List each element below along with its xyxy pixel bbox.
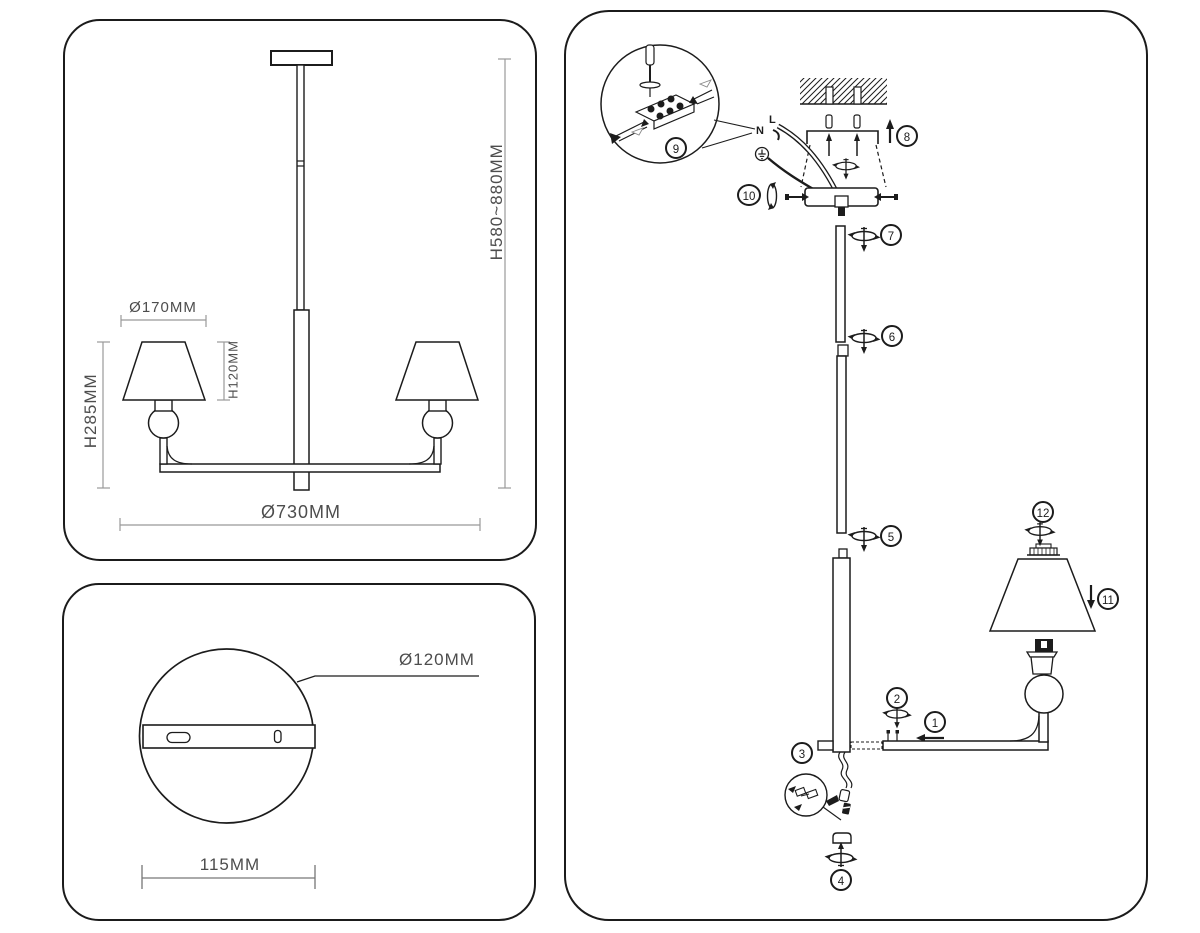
wire-live-label: L xyxy=(769,114,776,126)
ceiling-hatch xyxy=(800,78,887,104)
lamp-arm xyxy=(883,741,1048,750)
screwdriver-icon xyxy=(646,45,654,65)
rod-connector xyxy=(838,345,848,356)
dim-canopy-diameter: Ø120MM xyxy=(367,650,507,670)
edge-screw-icon xyxy=(768,182,777,210)
assembly-step-8: 8 xyxy=(896,125,918,147)
assembly-step-1: 1 xyxy=(924,711,946,733)
arm-stub-left xyxy=(818,741,833,750)
assembly-step-6: 6 xyxy=(881,325,903,347)
bottom-cap xyxy=(833,833,851,843)
lamp-socket xyxy=(1031,657,1053,674)
center-hub-assembly xyxy=(833,558,850,752)
dim-arm-height: H285MM xyxy=(81,351,101,471)
dim-shade-height: H120MM xyxy=(227,309,242,429)
wire-neutral-label: N xyxy=(756,125,764,137)
ground-symbol-icon xyxy=(756,148,769,161)
dim-hole-spacing: 115MM xyxy=(160,855,300,875)
dim-shade-diameter: Ø170MM xyxy=(93,299,233,316)
suspension-rod xyxy=(297,65,304,310)
cross-arm xyxy=(160,464,440,472)
assembly-step-10: 10 xyxy=(737,184,761,206)
line-art xyxy=(0,0,1200,933)
right-sphere xyxy=(423,408,453,438)
center-hub xyxy=(294,310,309,490)
assembly-step-9: 9 xyxy=(665,137,687,159)
assembly-step-11: 11 xyxy=(1097,588,1119,610)
right-socket xyxy=(429,400,446,411)
rod-section-lower xyxy=(837,356,846,533)
ceiling-canopy xyxy=(271,51,332,65)
detail-bubble-terminal xyxy=(601,45,719,163)
assembly-step-3: 3 xyxy=(791,742,813,764)
dim-overall-height: H580~880MM xyxy=(487,122,507,282)
glass-sphere xyxy=(1025,675,1063,713)
assembly-step-7: 7 xyxy=(880,224,902,246)
left-sphere xyxy=(149,408,179,438)
rod-section-upper xyxy=(836,226,845,342)
instruction-sheet: { "front": { "shade_diameter": "Ø170MM",… xyxy=(0,0,1200,933)
left-socket xyxy=(155,400,172,411)
assembly-step-2: 2 xyxy=(886,687,908,709)
canopy-slot-small xyxy=(275,731,282,743)
canopy-slot-oval xyxy=(167,733,190,743)
assembly-step-4: 4 xyxy=(830,869,852,891)
dim-fixture-diameter: Ø730MM xyxy=(231,502,371,523)
assembly-step-5: 5 xyxy=(880,525,902,547)
assembly-step-12: 12 xyxy=(1032,501,1054,523)
